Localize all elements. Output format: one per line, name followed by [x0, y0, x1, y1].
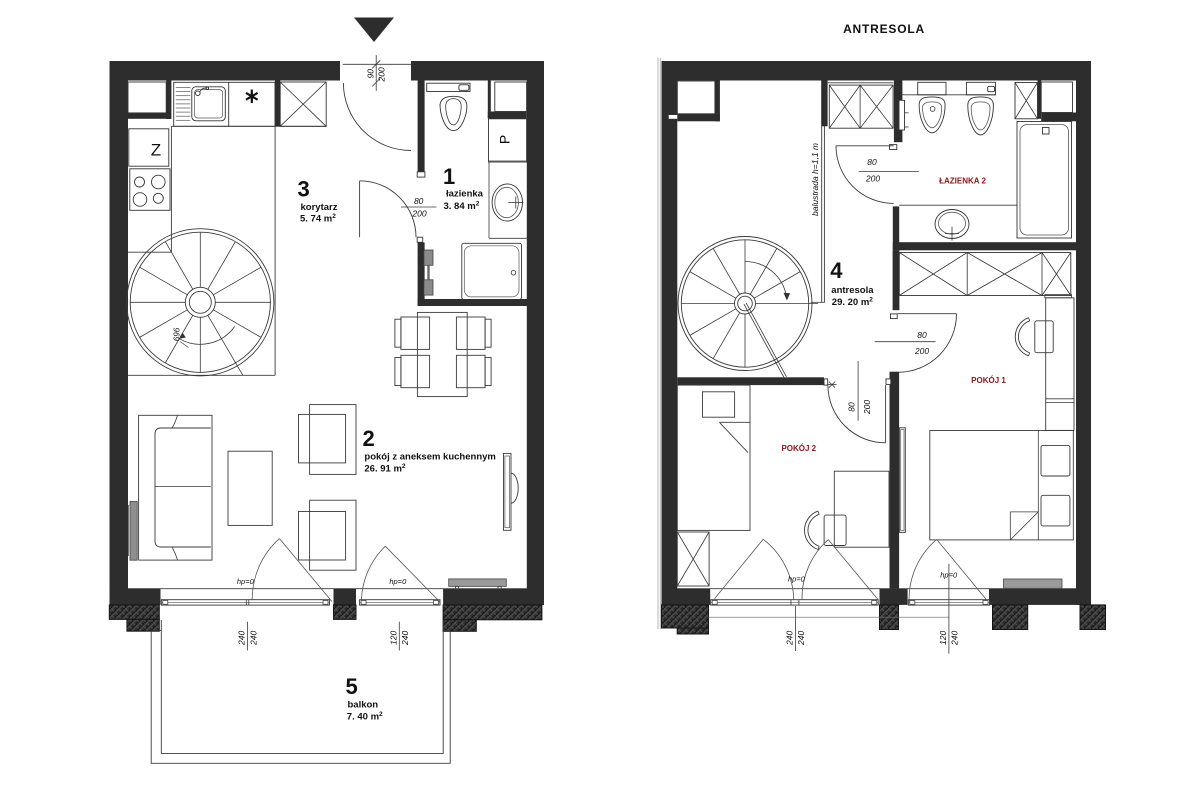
svg-text:29. 20 m2: 29. 20 m2	[832, 296, 874, 308]
svg-text:Z: Z	[151, 141, 161, 160]
svg-text:80: 80	[867, 157, 877, 167]
svg-text:POKÓJ 2: POKÓJ 2	[781, 444, 816, 453]
svg-text:120: 120	[938, 631, 948, 645]
svg-text:696: 696	[173, 327, 182, 341]
svg-text:240: 240	[400, 631, 410, 646]
svg-text:hp=0: hp=0	[788, 575, 806, 584]
svg-text:200: 200	[914, 346, 929, 356]
svg-text:P: P	[497, 135, 513, 144]
svg-text:200: 200	[411, 209, 426, 219]
svg-text:pokój z aneksem kuchennym: pokój z aneksem kuchennym	[364, 452, 495, 463]
svg-text:240: 240	[248, 631, 258, 646]
svg-text:2: 2	[363, 426, 375, 451]
svg-text:240: 240	[785, 631, 795, 646]
svg-text:80: 80	[414, 196, 424, 206]
svg-text:balustrada h=1,1 m: balustrada h=1,1 m	[810, 143, 820, 216]
svg-text:240: 240	[237, 631, 247, 646]
svg-text:200: 200	[862, 400, 872, 415]
svg-text:balkon: balkon	[348, 700, 379, 711]
svg-text:3. 84 m2: 3. 84 m2	[444, 200, 480, 212]
svg-text:POKÓJ 1: POKÓJ 1	[971, 376, 1006, 385]
svg-text:7. 40 m2: 7. 40 m2	[347, 711, 383, 723]
svg-text:korytarz: korytarz	[301, 202, 338, 213]
svg-text:26. 91 m2: 26. 91 m2	[364, 463, 406, 475]
svg-text:hp=0: hp=0	[237, 577, 255, 586]
svg-text:80: 80	[847, 402, 857, 412]
svg-text:5. 74 m2: 5. 74 m2	[300, 213, 336, 225]
svg-text:łazienka: łazienka	[446, 189, 484, 200]
svg-text:ŁAZIENKA 2: ŁAZIENKA 2	[939, 177, 986, 186]
svg-text:3: 3	[298, 176, 310, 201]
svg-text:120: 120	[388, 631, 398, 645]
svg-text:80: 80	[917, 330, 927, 340]
svg-text:antresola: antresola	[831, 285, 874, 296]
svg-text:1: 1	[443, 164, 455, 189]
svg-text:240: 240	[950, 631, 960, 646]
svg-text:ANTRESOLA: ANTRESOLA	[843, 22, 925, 36]
svg-text:90: 90	[365, 69, 375, 79]
svg-text:240: 240	[796, 631, 806, 646]
svg-text:200: 200	[865, 174, 880, 184]
svg-text:4: 4	[830, 258, 843, 283]
svg-text:200: 200	[377, 67, 387, 82]
svg-text:5: 5	[346, 674, 358, 699]
svg-text:hp=0: hp=0	[389, 577, 407, 586]
